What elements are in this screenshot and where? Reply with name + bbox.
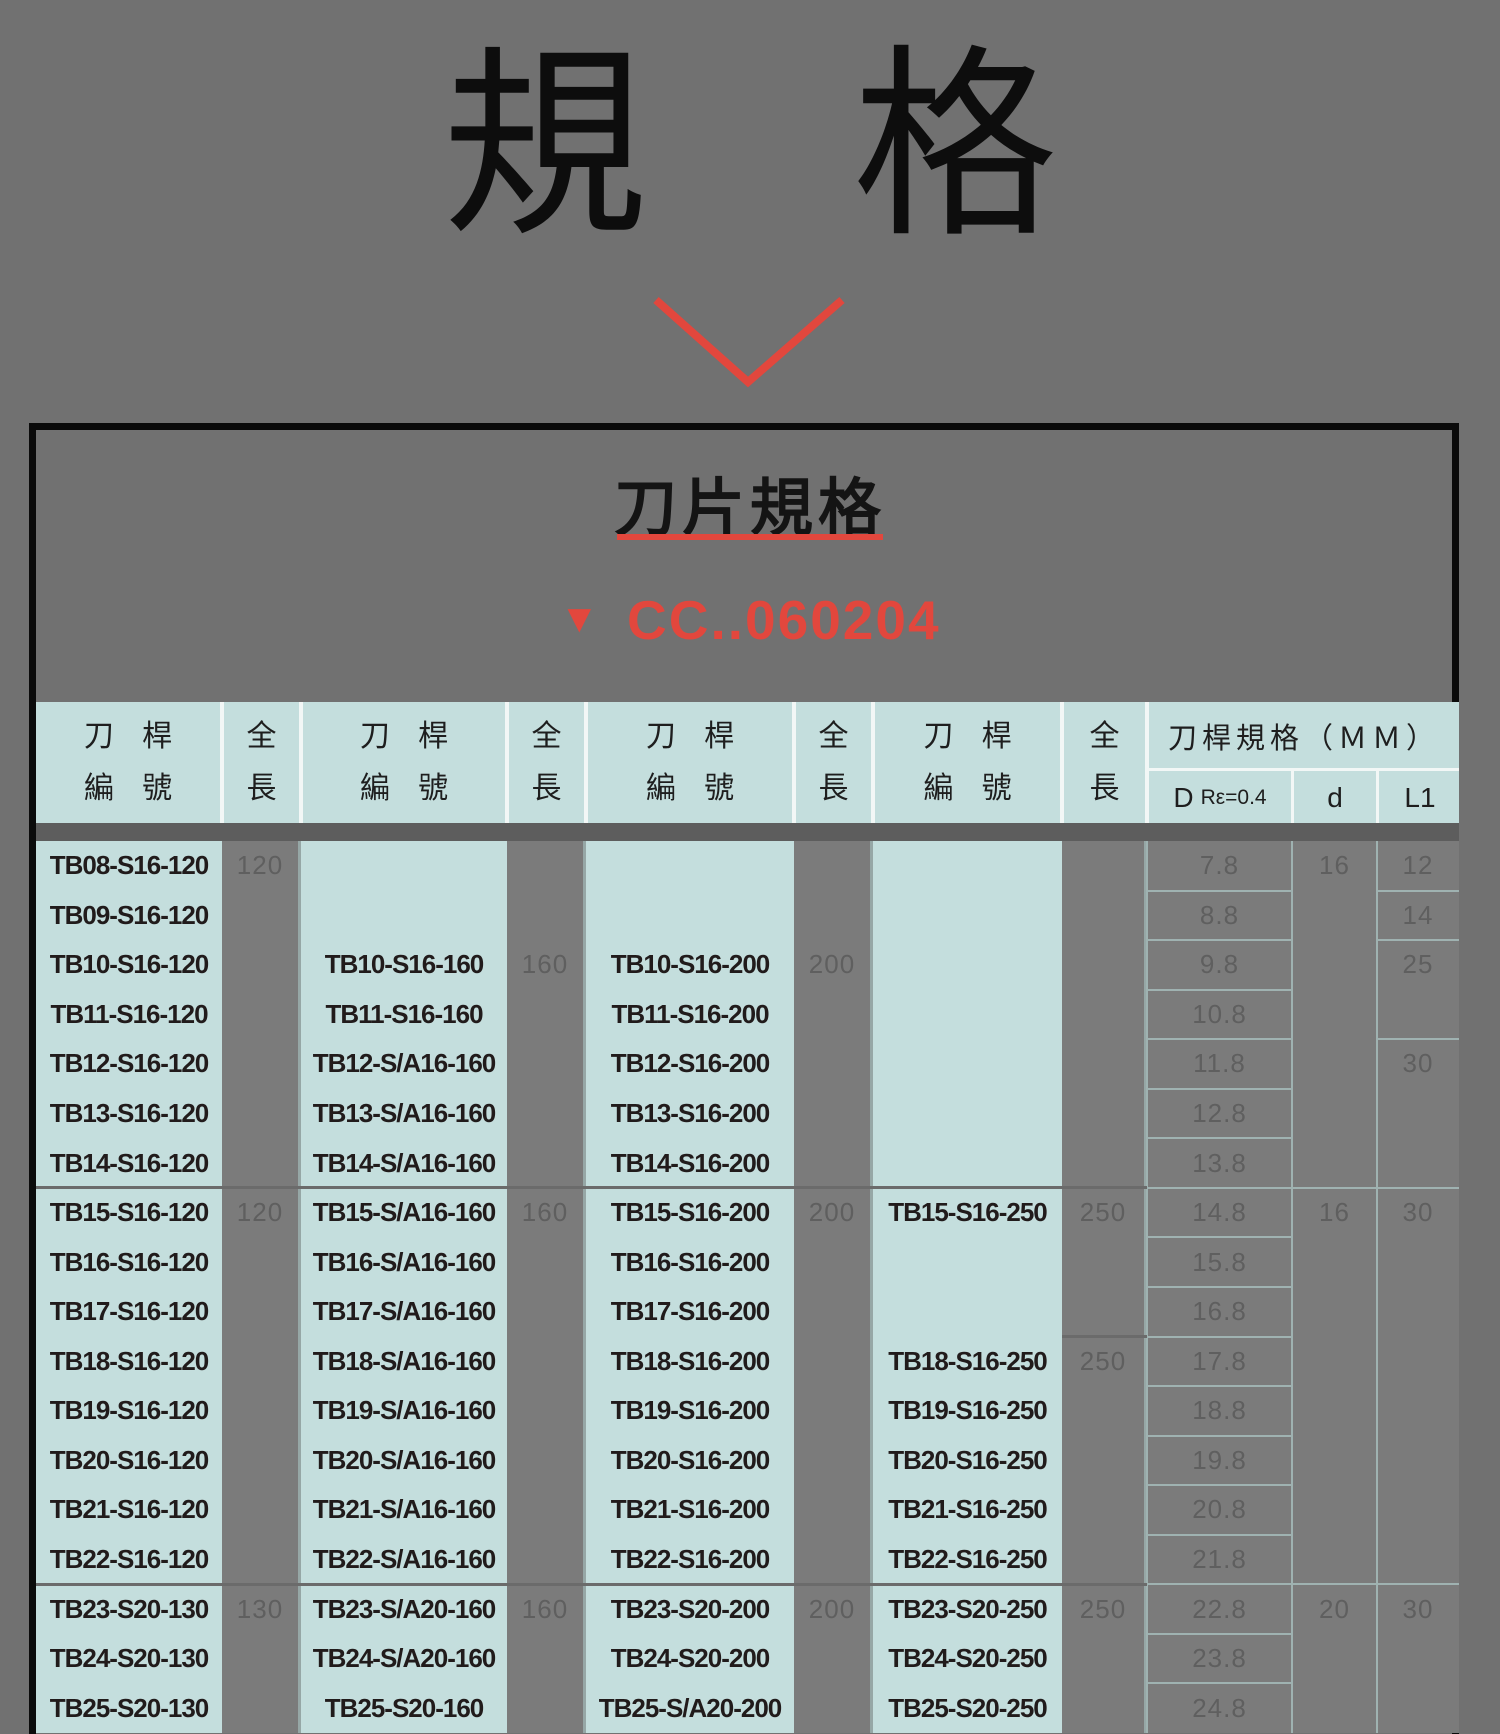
holder-id-cell: TB12-S/A16-160 [301, 1039, 507, 1089]
d-cell-border [1147, 1038, 1292, 1040]
l1-cell-border [1377, 1583, 1459, 1585]
column-border [1146, 841, 1148, 1733]
d-cell-border [1147, 1682, 1292, 1684]
length-value: 200 [794, 1584, 870, 1634]
header-holder-line1: 刀 桿 [636, 711, 744, 763]
d-cell-border [1147, 1137, 1292, 1139]
insert-code: CC..060204 [627, 589, 941, 651]
d-value: 15.8 [1147, 1237, 1292, 1287]
length-value: 130 [222, 1584, 298, 1634]
l1-cell-border [1377, 890, 1459, 892]
d-cell-border [1147, 1435, 1292, 1437]
d-value: 17.8 [1147, 1337, 1292, 1387]
header-length-cell: 全長 [224, 702, 299, 823]
header-length-line1: 全 [522, 711, 572, 763]
holder-id-cell: TB21-S16-120 [36, 1485, 222, 1535]
l1-cell-border [1377, 1187, 1459, 1189]
holder-id-cell: TB25-S20-160 [301, 1683, 507, 1733]
holder-id-cell: TB20-S16-250 [873, 1436, 1062, 1486]
holder-id-cell: TB21-S16-200 [586, 1485, 794, 1535]
header-length-line2: 長 [522, 763, 572, 815]
d-value: 24.8 [1147, 1683, 1292, 1733]
table-body: TB08-S16-120TB09-S16-120TB10-S16-120TB11… [36, 841, 1459, 1733]
d-value: 9.8 [1147, 940, 1292, 990]
holder-id-cell: TB15-S/A16-160 [301, 1188, 507, 1238]
holder-id-cell: TB19-S16-200 [586, 1386, 794, 1436]
header-spec-group: 刀桿規格（ＭＭ）DRε=0.4dL1 [1149, 702, 1459, 823]
l1-value: 30 [1377, 1039, 1459, 1089]
d-value: 16.8 [1147, 1287, 1292, 1337]
d-cell-border [1147, 1633, 1292, 1635]
holder-id-cell: TB16-S/A16-160 [301, 1237, 507, 1287]
holder-id-cell: TB21-S/A16-160 [301, 1485, 507, 1535]
holder-id-cell: TB13-S16-200 [586, 1089, 794, 1139]
panel-title-underline [617, 534, 883, 540]
d-value: 21.8 [1147, 1535, 1292, 1585]
header-length-cell: 全長 [796, 702, 871, 823]
header-holder-cell: 刀 桿編 號 [303, 702, 505, 823]
holder-id-cell: TB24-S20-200 [586, 1634, 794, 1684]
holder-id-cell: TB20-S16-200 [586, 1436, 794, 1486]
d-value: 23.8 [1147, 1634, 1292, 1684]
d-cell-border [1147, 1336, 1292, 1338]
l1-value: 30 [1377, 1188, 1459, 1238]
d-value: 22.8 [1147, 1584, 1292, 1634]
holder-id-cell: TB15-S16-250 [873, 1188, 1062, 1238]
holder-id-cell: TB15-S16-120 [36, 1188, 222, 1238]
l1-value: 14 [1377, 891, 1459, 941]
d-cell-border [1147, 890, 1292, 892]
header-holder-cell: 刀 桿編 號 [875, 702, 1060, 823]
d-cell-border [1147, 1583, 1292, 1585]
length-value: 200 [794, 940, 870, 990]
holder-id-cell: TB19-S/A16-160 [301, 1386, 507, 1436]
header-holder-cell: 刀 桿編 號 [588, 702, 792, 823]
d-value: 12.8 [1147, 1089, 1292, 1139]
length-value: 250 [1062, 1584, 1144, 1634]
holder-id-cell: TB23-S20-250 [873, 1584, 1062, 1634]
header-holder-line2: 編 號 [636, 763, 744, 815]
header-length-cell: 全長 [1064, 702, 1145, 823]
holder-id-cell: TB22-S16-200 [586, 1535, 794, 1585]
chevron-down-icon [650, 292, 850, 392]
holder-id-cell: TB21-S16-250 [873, 1485, 1062, 1535]
holder-id-cell: TB24-S20-130 [36, 1634, 222, 1684]
length-value: 160 [507, 1584, 583, 1634]
holder-id-cell: TB24-S20-250 [873, 1634, 1062, 1684]
d-value: 20.8 [1147, 1485, 1292, 1535]
holder-id-cell: TB17-S/A16-160 [301, 1287, 507, 1337]
d-cell-border [1147, 939, 1292, 941]
holder-id-cell: TB25-S/A20-200 [586, 1683, 794, 1733]
holder-id-cell: TB11-S16-200 [586, 990, 794, 1040]
holder-id-cell: TB09-S16-120 [36, 891, 222, 941]
holder-id-cell: TB17-S16-200 [586, 1287, 794, 1337]
holder-id-cell: TB12-S16-120 [36, 1039, 222, 1089]
header-sub-d: DRε=0.4 [1149, 773, 1291, 823]
header-sub-shank: d [1294, 773, 1376, 823]
l1-value: 25 [1377, 940, 1459, 990]
d-cell-border [1147, 1187, 1292, 1189]
page-title: 規 格 [0, 40, 1500, 255]
header-sub-d-main: D [1173, 782, 1193, 814]
d-value: 18.8 [1147, 1386, 1292, 1436]
holder-id-cell: TB11-S16-120 [36, 990, 222, 1040]
header-holder-line1: 刀 桿 [350, 711, 458, 763]
l1-cell-border [1377, 1038, 1459, 1040]
holder-id-cell: TB22-S/A16-160 [301, 1535, 507, 1585]
header-body-divider [36, 823, 1459, 841]
holder-id-cell: TB18-S16-250 [873, 1337, 1062, 1387]
holder-id-cell: TB25-S20-250 [873, 1683, 1062, 1733]
group-separator-line [36, 1583, 1147, 1586]
holder-id-cell: TB18-S16-120 [36, 1337, 222, 1387]
holder-id-cell: TB12-S16-200 [586, 1039, 794, 1089]
triangle-marker-icon: ▼ [559, 597, 601, 642]
holder-id-cell: TB24-S/A20-160 [301, 1634, 507, 1684]
holder-id-cell: TB08-S16-120 [36, 841, 222, 891]
header-length-line1: 全 [809, 711, 859, 763]
d-value: 11.8 [1147, 1039, 1292, 1089]
holder-id-cell: TB13-S/A16-160 [301, 1089, 507, 1139]
d-value: 7.8 [1147, 841, 1292, 891]
d-cell-border [1147, 1534, 1292, 1536]
header-length-line1: 全 [237, 711, 287, 763]
holder-id-cell: TB14-S16-200 [586, 1138, 794, 1188]
holder-id-cell: TB14-S16-120 [36, 1138, 222, 1188]
length-value: 250 [1062, 1337, 1144, 1387]
length-value: 200 [794, 1188, 870, 1238]
d-value: 10.8 [1147, 990, 1292, 1040]
header-holder-line1: 刀 桿 [913, 711, 1021, 763]
l1-value: 12 [1377, 841, 1459, 891]
holder-id-cell: TB25-S20-130 [36, 1683, 222, 1733]
holder-id-cell: TB23-S20-130 [36, 1584, 222, 1634]
d-cell-border [1147, 1484, 1292, 1486]
shank-cell-border [1292, 1187, 1377, 1189]
holder-id-cell: TB16-S16-200 [586, 1237, 794, 1287]
holder-id-cell: TB20-S/A16-160 [301, 1436, 507, 1486]
length4-cell-border [1062, 1335, 1147, 1338]
length-value: 160 [507, 1188, 583, 1238]
holder-id-cell: TB17-S16-120 [36, 1287, 222, 1337]
spec-table: 刀 桿編 號全長刀 桿編 號全長刀 桿編 號全長刀 桿編 號全長刀桿規格（ＭＭ）… [36, 702, 1459, 1733]
length-value: 120 [222, 841, 298, 891]
header-sub-l1: L1 [1379, 773, 1461, 823]
holder-id-cell: TB18-S/A16-160 [301, 1337, 507, 1387]
header-holder-line2: 編 號 [350, 763, 458, 815]
holder-id-cell: TB22-S16-250 [873, 1535, 1062, 1585]
d-cell-border [1147, 1088, 1292, 1090]
holder-id-cell: TB20-S16-120 [36, 1436, 222, 1486]
d-cell-border [1147, 989, 1292, 991]
d-cell-border [1147, 1385, 1292, 1387]
insert-code-line: ▼CC..060204 [0, 588, 1500, 652]
header-sub-d-detail: Rε=0.4 [1201, 786, 1267, 810]
holder-id-cell: TB14-S/A16-160 [301, 1138, 507, 1188]
header-holder-cell: 刀 桿編 號 [36, 702, 220, 823]
holder-id-cell: TB23-S20-200 [586, 1584, 794, 1634]
l1-value: 30 [1377, 1584, 1459, 1634]
header-length-line1: 全 [1080, 711, 1130, 763]
d-value: 19.8 [1147, 1436, 1292, 1486]
header-length-line2: 長 [809, 763, 859, 815]
header-spec-divider [1149, 768, 1459, 771]
holder-id-cell: TB10-S16-160 [301, 940, 507, 990]
table-header: 刀 桿編 號全長刀 桿編 號全長刀 桿編 號全長刀 桿編 號全長刀桿規格（ＭＭ）… [36, 702, 1459, 823]
header-spec-title: 刀桿規格（ＭＭ） [1149, 702, 1459, 770]
header-length-line2: 長 [237, 763, 287, 815]
header-holder-line1: 刀 桿 [74, 711, 182, 763]
group-separator-line [36, 1186, 1147, 1189]
d-value: 8.8 [1147, 891, 1292, 941]
holder-id-cell: TB19-S16-250 [873, 1386, 1062, 1436]
d-cell-border [1147, 1286, 1292, 1288]
length-value: 120 [222, 1188, 298, 1238]
l1-cell-border [1377, 939, 1459, 941]
length-value: 250 [1062, 1188, 1144, 1238]
holder-id-cell: TB18-S16-200 [586, 1337, 794, 1387]
holder-id-cell: TB23-S/A20-160 [301, 1584, 507, 1634]
holder-id-cell: TB10-S16-200 [586, 940, 794, 990]
header-holder-line2: 編 號 [74, 763, 182, 815]
shank-d-value: 16 [1292, 841, 1377, 891]
header-length-line2: 長 [1080, 763, 1130, 815]
d-value: 14.8 [1147, 1188, 1292, 1238]
d-value: 13.8 [1147, 1138, 1292, 1188]
header-length-cell: 全長 [509, 702, 584, 823]
length-value: 160 [507, 940, 583, 990]
holder-id-cell: TB22-S16-120 [36, 1535, 222, 1585]
header-holder-line2: 編 號 [913, 763, 1021, 815]
shank-d-value: 20 [1292, 1584, 1377, 1634]
d-cell-border [1147, 1236, 1292, 1238]
holder-id-cell: TB16-S16-120 [36, 1237, 222, 1287]
holder-id-cell: TB10-S16-120 [36, 940, 222, 990]
holder-id-cell: TB19-S16-120 [36, 1386, 222, 1436]
shank-d-value: 16 [1292, 1188, 1377, 1238]
holder-id-cell: TB15-S16-200 [586, 1188, 794, 1238]
shank-cell-border [1292, 1583, 1377, 1585]
holder-id-cell: TB11-S16-160 [301, 990, 507, 1040]
holder-id-cell: TB13-S16-120 [36, 1089, 222, 1139]
